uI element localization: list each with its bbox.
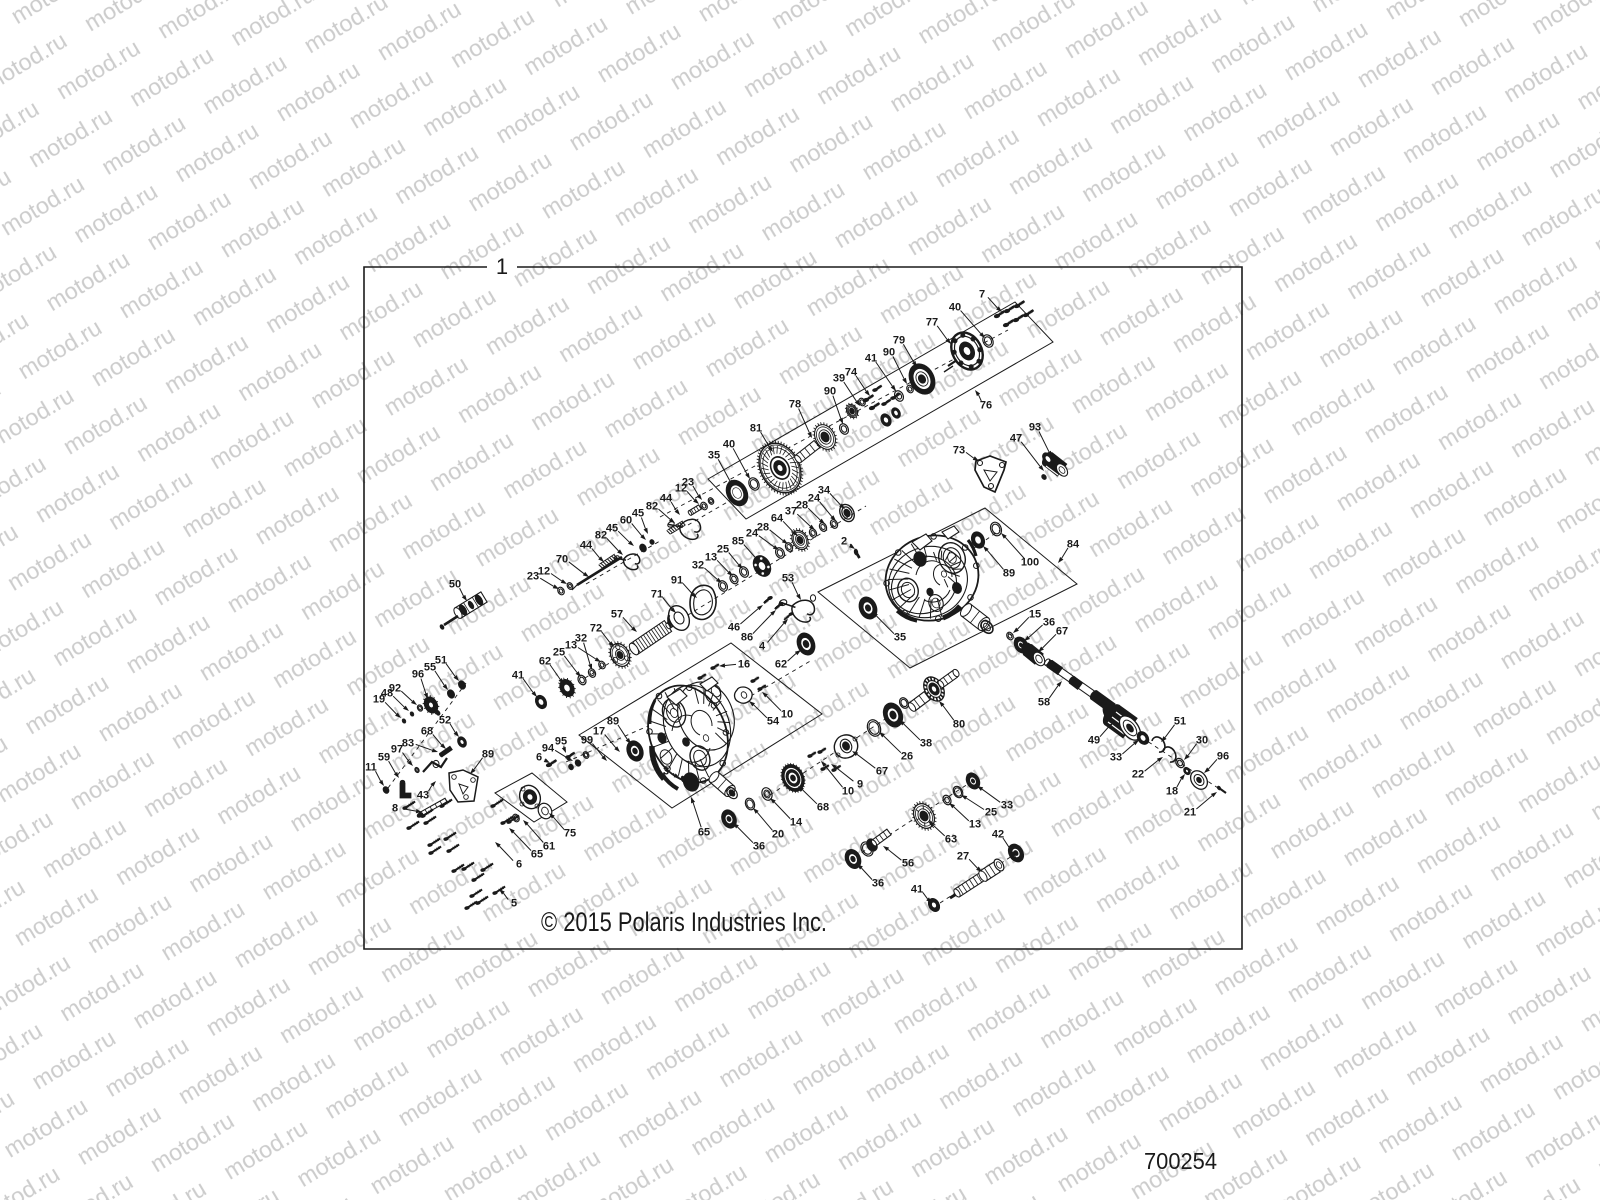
svg-text:43: 43 xyxy=(417,790,429,802)
svg-text:14: 14 xyxy=(790,817,803,829)
svg-text:45: 45 xyxy=(632,508,644,520)
svg-text:37: 37 xyxy=(785,506,797,518)
svg-text:89: 89 xyxy=(482,749,494,761)
svg-text:89: 89 xyxy=(607,716,619,728)
svg-text:83: 83 xyxy=(402,738,414,750)
svg-text:13: 13 xyxy=(969,819,981,831)
svg-text:84: 84 xyxy=(1067,539,1080,551)
svg-text:67: 67 xyxy=(1056,626,1068,638)
svg-text:52: 52 xyxy=(439,715,451,727)
svg-text:86: 86 xyxy=(741,632,753,644)
svg-text:33: 33 xyxy=(1110,752,1122,764)
svg-text:70: 70 xyxy=(556,554,568,566)
svg-text:96: 96 xyxy=(412,669,424,681)
svg-text:81: 81 xyxy=(750,423,762,435)
svg-text:60: 60 xyxy=(620,515,632,527)
svg-text:54: 54 xyxy=(767,716,780,728)
svg-text:95: 95 xyxy=(555,736,567,748)
svg-text:90: 90 xyxy=(824,386,836,398)
svg-text:96: 96 xyxy=(1217,751,1229,763)
svg-text:23: 23 xyxy=(527,571,539,583)
svg-text:85: 85 xyxy=(732,536,744,548)
svg-text:36: 36 xyxy=(1043,617,1055,629)
svg-text:51: 51 xyxy=(435,655,447,667)
svg-text:25: 25 xyxy=(717,544,729,556)
svg-text:40: 40 xyxy=(949,302,961,314)
svg-text:10: 10 xyxy=(842,786,854,798)
svg-text:82: 82 xyxy=(595,530,607,542)
svg-text:51: 51 xyxy=(1174,716,1186,728)
svg-text:50: 50 xyxy=(449,579,461,591)
svg-text:58: 58 xyxy=(1038,697,1050,709)
svg-text:49: 49 xyxy=(1088,735,1100,747)
svg-text:41: 41 xyxy=(865,353,877,365)
svg-text:33: 33 xyxy=(1001,800,1013,812)
svg-text:80: 80 xyxy=(953,719,965,731)
svg-text:75: 75 xyxy=(564,828,576,840)
svg-text:20: 20 xyxy=(772,829,784,841)
svg-text:© 2015 Polaris Industries Inc.: © 2015 Polaris Industries Inc. xyxy=(541,907,827,937)
svg-text:25: 25 xyxy=(985,807,997,819)
svg-text:47: 47 xyxy=(1010,433,1022,445)
svg-text:26: 26 xyxy=(901,751,913,763)
svg-text:5: 5 xyxy=(511,898,517,910)
svg-text:700254: 700254 xyxy=(1144,1148,1217,1174)
svg-text:12: 12 xyxy=(675,483,687,495)
svg-text:24: 24 xyxy=(808,493,821,505)
svg-text:25: 25 xyxy=(553,647,565,659)
svg-text:62: 62 xyxy=(775,659,787,671)
svg-text:3: 3 xyxy=(663,766,669,778)
svg-text:63: 63 xyxy=(945,834,957,846)
svg-text:44: 44 xyxy=(580,540,593,552)
svg-text:28: 28 xyxy=(796,500,808,512)
svg-text:94: 94 xyxy=(542,743,555,755)
svg-text:36: 36 xyxy=(753,841,765,853)
svg-text:89: 89 xyxy=(1003,568,1015,580)
svg-text:10: 10 xyxy=(781,709,793,721)
svg-text:68: 68 xyxy=(421,726,433,738)
svg-text:32: 32 xyxy=(692,560,704,572)
svg-text:78: 78 xyxy=(789,399,801,411)
svg-text:4: 4 xyxy=(759,641,766,653)
svg-text:11: 11 xyxy=(365,762,377,774)
svg-text:8: 8 xyxy=(392,803,398,815)
svg-text:27: 27 xyxy=(957,851,969,863)
svg-text:9: 9 xyxy=(857,779,863,791)
svg-text:92: 92 xyxy=(389,683,401,695)
svg-text:24: 24 xyxy=(746,528,759,540)
svg-text:16: 16 xyxy=(738,659,750,671)
svg-text:68: 68 xyxy=(817,802,829,814)
svg-text:12: 12 xyxy=(538,566,550,578)
svg-text:2: 2 xyxy=(841,536,847,548)
svg-text:17: 17 xyxy=(593,726,605,738)
svg-text:15: 15 xyxy=(1029,609,1041,621)
svg-text:30: 30 xyxy=(1196,735,1208,747)
svg-text:65: 65 xyxy=(531,849,543,861)
svg-text:38: 38 xyxy=(920,738,932,750)
svg-text:56: 56 xyxy=(902,858,914,870)
svg-text:59: 59 xyxy=(378,752,390,764)
svg-text:13: 13 xyxy=(705,552,717,564)
svg-text:28: 28 xyxy=(757,522,769,534)
svg-text:46: 46 xyxy=(728,622,740,634)
svg-text:91: 91 xyxy=(671,575,683,587)
svg-text:64: 64 xyxy=(771,513,784,525)
svg-text:6: 6 xyxy=(536,752,542,764)
svg-text:72: 72 xyxy=(590,623,602,635)
svg-text:77: 77 xyxy=(926,317,938,329)
svg-text:22: 22 xyxy=(1132,769,1144,781)
svg-text:36: 36 xyxy=(872,878,884,890)
svg-text:1: 1 xyxy=(496,254,508,279)
svg-text:39: 39 xyxy=(833,373,845,385)
svg-text:57: 57 xyxy=(611,609,623,621)
svg-text:99: 99 xyxy=(581,735,593,747)
svg-text:7: 7 xyxy=(979,289,985,301)
svg-text:71: 71 xyxy=(651,589,663,601)
svg-text:35: 35 xyxy=(894,632,906,644)
svg-text:61: 61 xyxy=(543,841,555,853)
svg-text:13: 13 xyxy=(565,640,577,652)
svg-text:45: 45 xyxy=(606,523,618,535)
svg-text:6: 6 xyxy=(516,859,522,871)
svg-text:67: 67 xyxy=(876,766,888,778)
svg-text:21: 21 xyxy=(1184,807,1196,819)
svg-text:41: 41 xyxy=(911,884,923,896)
svg-text:65: 65 xyxy=(698,827,710,839)
svg-text:42: 42 xyxy=(992,829,1004,841)
svg-text:62: 62 xyxy=(539,656,551,668)
svg-text:76: 76 xyxy=(980,400,992,412)
svg-text:73: 73 xyxy=(953,445,965,457)
svg-text:18: 18 xyxy=(1166,786,1178,798)
svg-text:82: 82 xyxy=(646,501,658,513)
svg-text:41: 41 xyxy=(512,670,524,682)
